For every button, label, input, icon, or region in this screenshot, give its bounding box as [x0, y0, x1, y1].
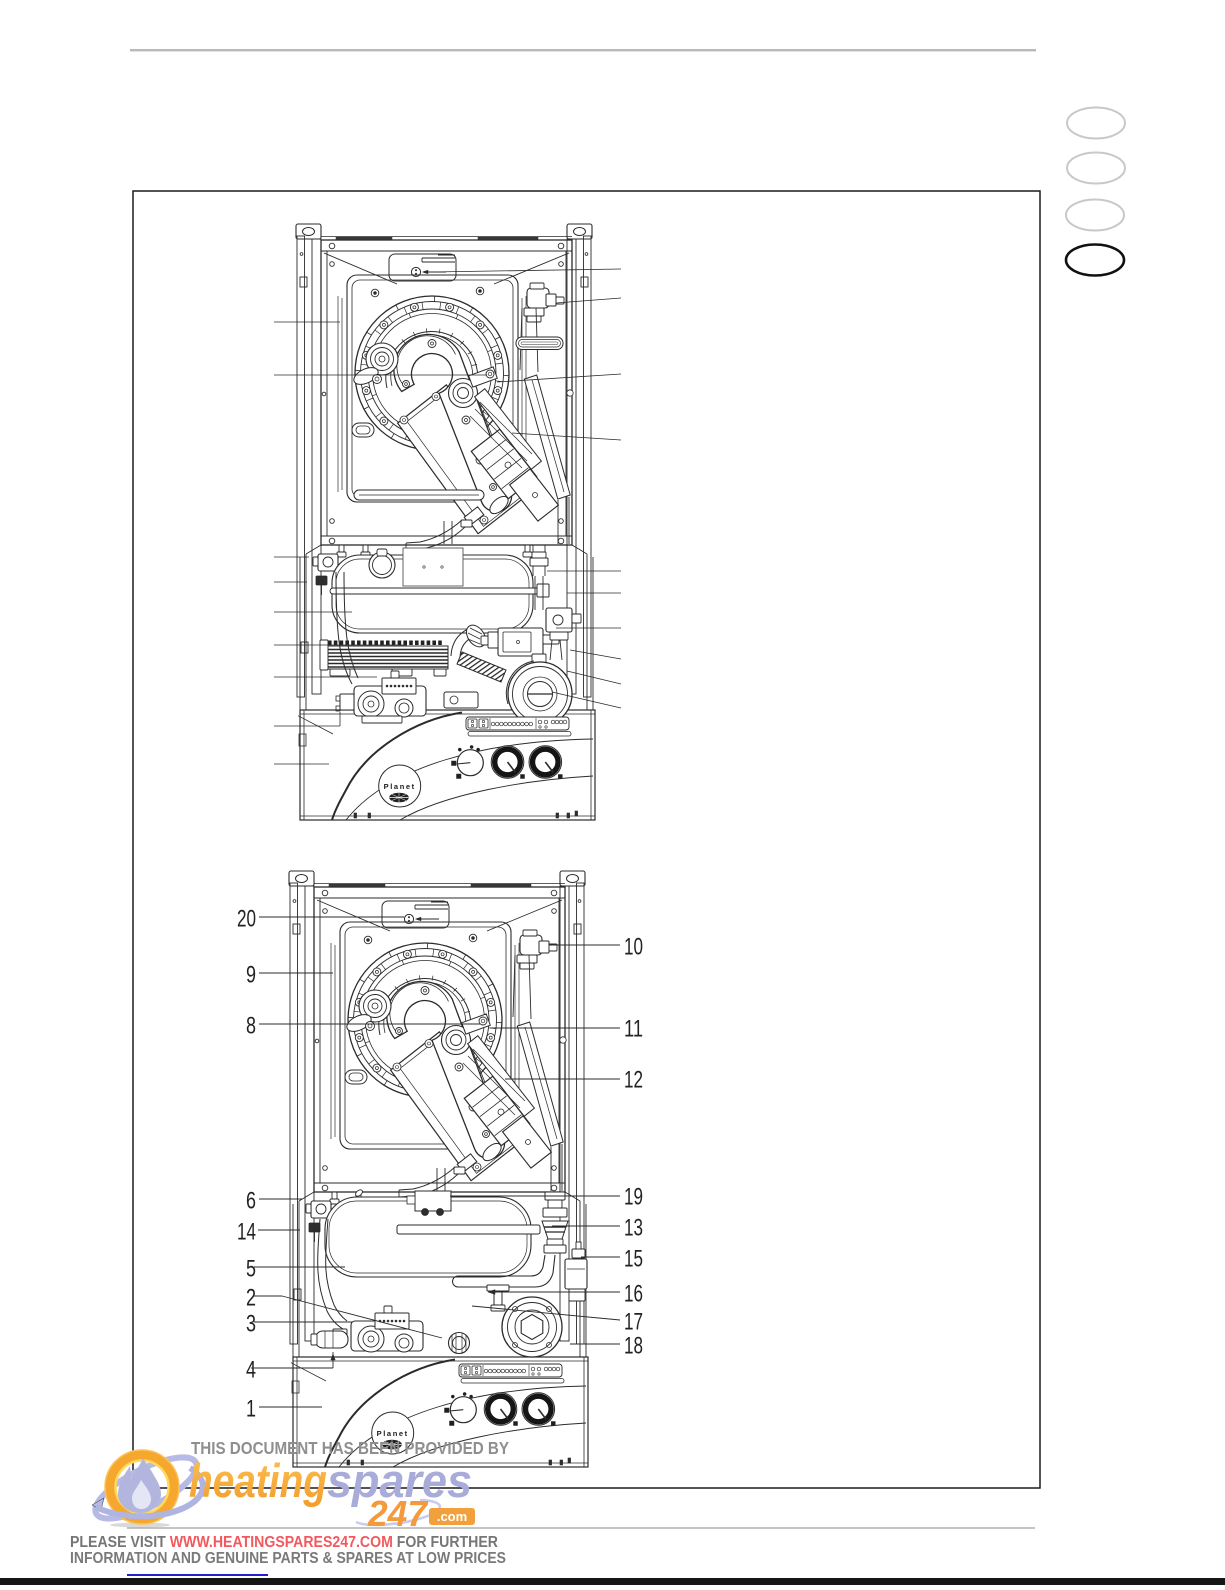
svg-text:13: 13	[624, 1215, 643, 1242]
svg-text:19: 19	[624, 1184, 643, 1211]
svg-text:INFORMATION AND GENUINE PARTS: INFORMATION AND GENUINE PARTS & SPARES A…	[70, 1550, 506, 1567]
svg-text:11: 11	[624, 1016, 643, 1043]
svg-text:Planet: Planet	[384, 782, 416, 791]
svg-text:.com: .com	[437, 1509, 467, 1524]
svg-text:2: 2	[246, 1285, 256, 1312]
svg-text:10: 10	[624, 934, 643, 961]
svg-text:5: 5	[246, 1256, 256, 1283]
svg-text:9: 9	[246, 962, 256, 989]
svg-text:20: 20	[237, 906, 256, 933]
svg-text:8: 8	[246, 1013, 256, 1040]
svg-text:heating: heating	[189, 1454, 327, 1507]
svg-text:17: 17	[624, 1309, 643, 1336]
svg-text:12: 12	[624, 1067, 643, 1094]
svg-text:4: 4	[246, 1357, 256, 1384]
svg-text:Planet: Planet	[377, 1429, 409, 1438]
svg-text:6: 6	[246, 1188, 256, 1215]
svg-text:PLEASE VISIT WWW.HEATINGSPARES: PLEASE VISIT WWW.HEATINGSPARES247.COM FO…	[70, 1534, 498, 1551]
svg-text:15: 15	[624, 1246, 643, 1273]
svg-text:18: 18	[624, 1333, 643, 1360]
svg-text:3: 3	[246, 1311, 256, 1338]
svg-text:14: 14	[237, 1219, 256, 1246]
svg-text:16: 16	[624, 1281, 643, 1308]
svg-text:1: 1	[246, 1396, 256, 1423]
